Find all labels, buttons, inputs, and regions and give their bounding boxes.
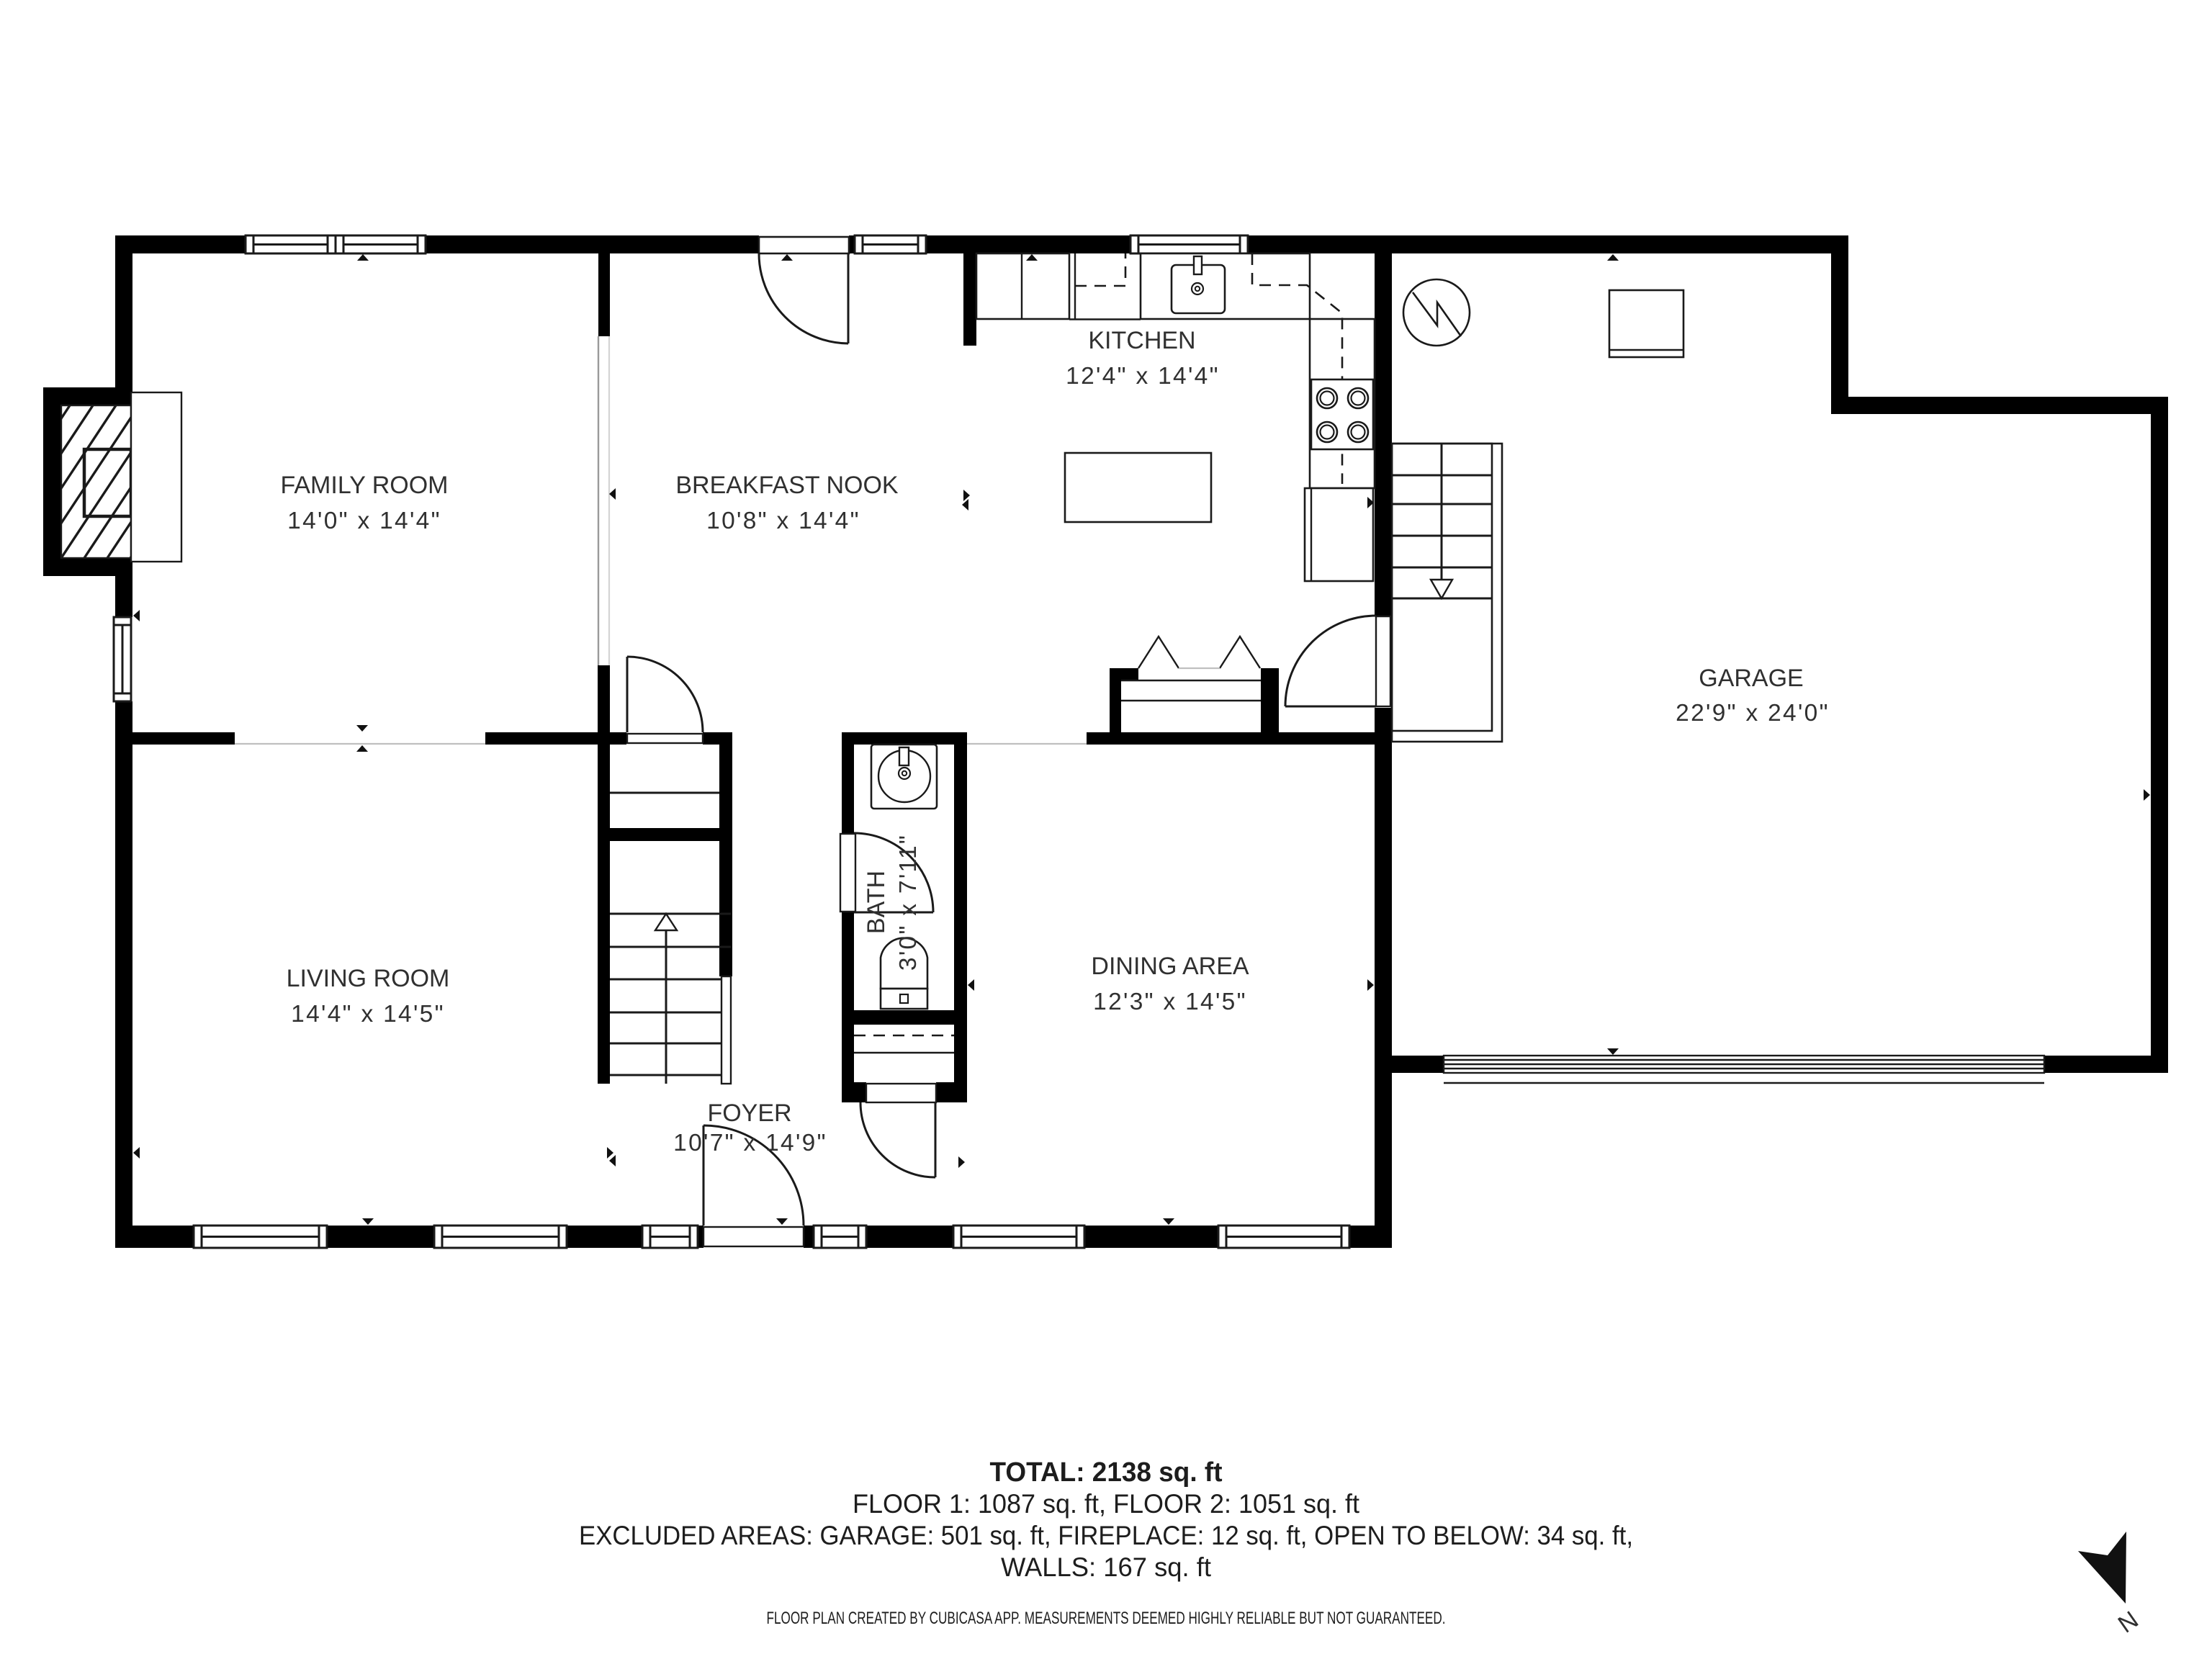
svg-text:WALLS: 167 sq. ft: WALLS: 167 sq. ft [1001,1552,1212,1582]
svg-text:EXCLUDED AREAS: GARAGE: 501 sq: EXCLUDED AREAS: GARAGE: 501 sq. ft, FIRE… [579,1521,1633,1550]
svg-text:GARAGE: GARAGE [1699,665,1803,692]
svg-text:BREAKFAST NOOK: BREAKFAST NOOK [675,472,899,499]
svg-text:FOYER: FOYER [707,1100,791,1127]
svg-text:14'0" x 14'4": 14'0" x 14'4" [287,508,441,534]
svg-text:10'8" x 14'4": 10'8" x 14'4" [706,508,860,534]
svg-text:22'9" x 24'0": 22'9" x 24'0" [1676,700,1830,727]
svg-text:FLOOR 1: 1087 sq. ft, FLOOR 2:: FLOOR 1: 1087 sq. ft, FLOOR 2: 1051 sq. … [853,1489,1360,1519]
svg-text:FAMILY ROOM: FAMILY ROOM [280,472,448,499]
svg-text:10'7" x 14'9": 10'7" x 14'9" [673,1130,827,1156]
svg-text:14'4" x 14'5": 14'4" x 14'5" [291,1001,445,1028]
svg-text:DINING AREA: DINING AREA [1091,953,1249,980]
svg-text:KITCHEN: KITCHEN [1088,327,1195,354]
svg-text:LIVING ROOM: LIVING ROOM [287,965,450,992]
svg-text:FLOOR PLAN CREATED BY CUBICASA: FLOOR PLAN CREATED BY CUBICASA APP. MEAS… [767,1609,1446,1628]
svg-text:12'3" x 14'5": 12'3" x 14'5" [1093,989,1247,1015]
svg-text:TOTAL: 2138 sq. ft: TOTAL: 2138 sq. ft [990,1457,1223,1488]
svg-text:3'0" x 7'11": 3'0" x 7'11" [895,834,922,971]
svg-text:12'4" x 14'4": 12'4" x 14'4" [1066,363,1220,390]
svg-text:BATH: BATH [863,871,890,934]
